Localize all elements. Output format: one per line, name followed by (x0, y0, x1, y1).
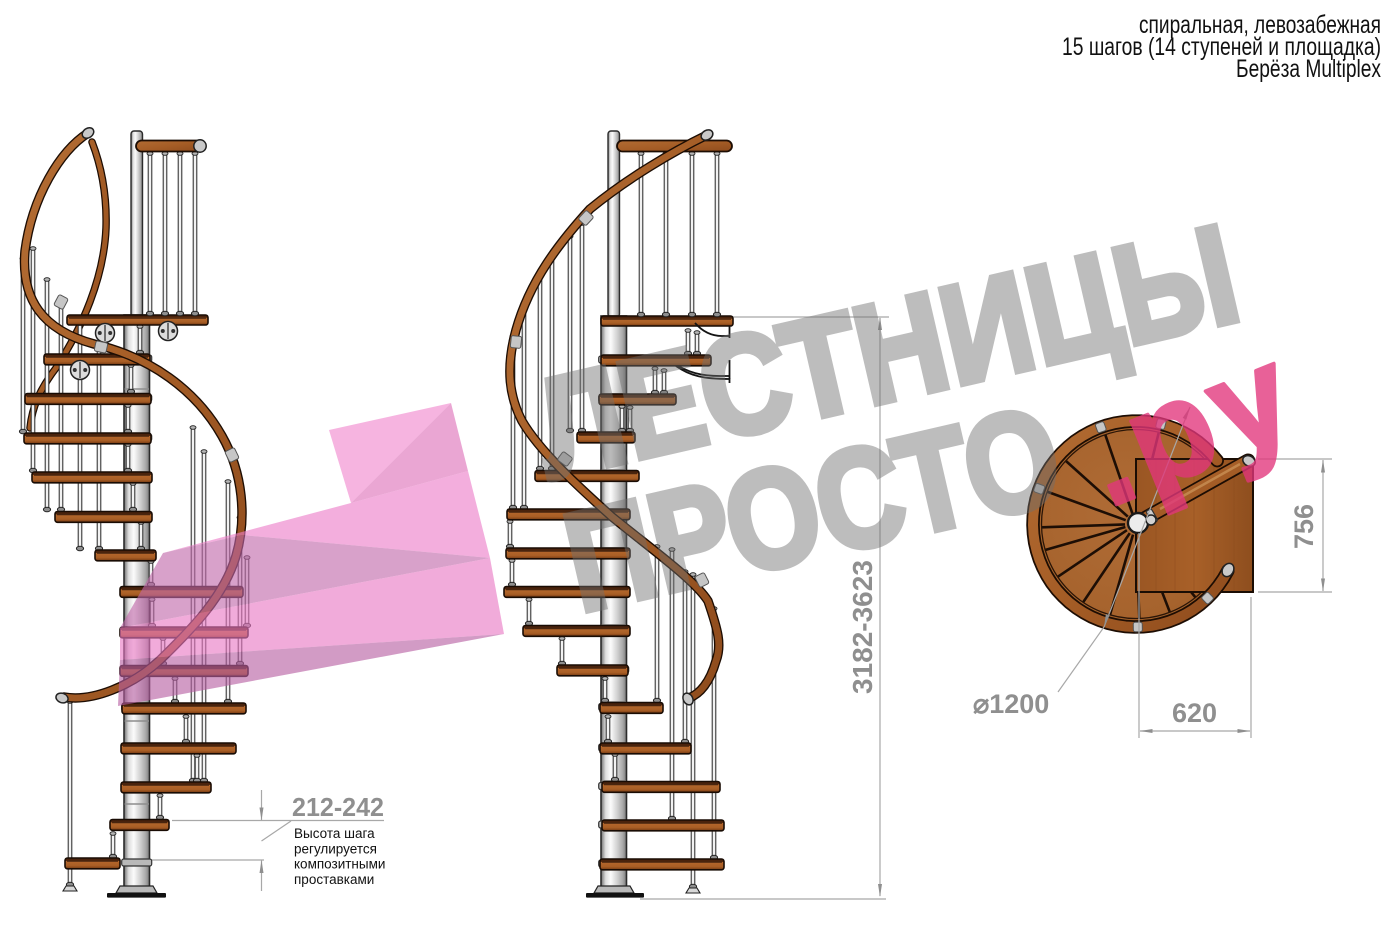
svg-text:композитными: композитными (294, 857, 385, 872)
svg-text:Высота шага: Высота шага (294, 826, 375, 841)
svg-text:756: 756 (1289, 504, 1319, 549)
svg-text:620: 620 (1172, 698, 1217, 728)
svg-text:проставками: проставками (294, 872, 374, 887)
svg-text:⌀1200: ⌀1200 (973, 689, 1049, 719)
svg-text:Берёза Multiplex: Берёза Multiplex (1236, 55, 1381, 83)
svg-text:регулируется: регулируется (294, 841, 377, 856)
svg-text:212-242: 212-242 (292, 792, 384, 822)
svg-text:3182-3623: 3182-3623 (847, 560, 878, 694)
